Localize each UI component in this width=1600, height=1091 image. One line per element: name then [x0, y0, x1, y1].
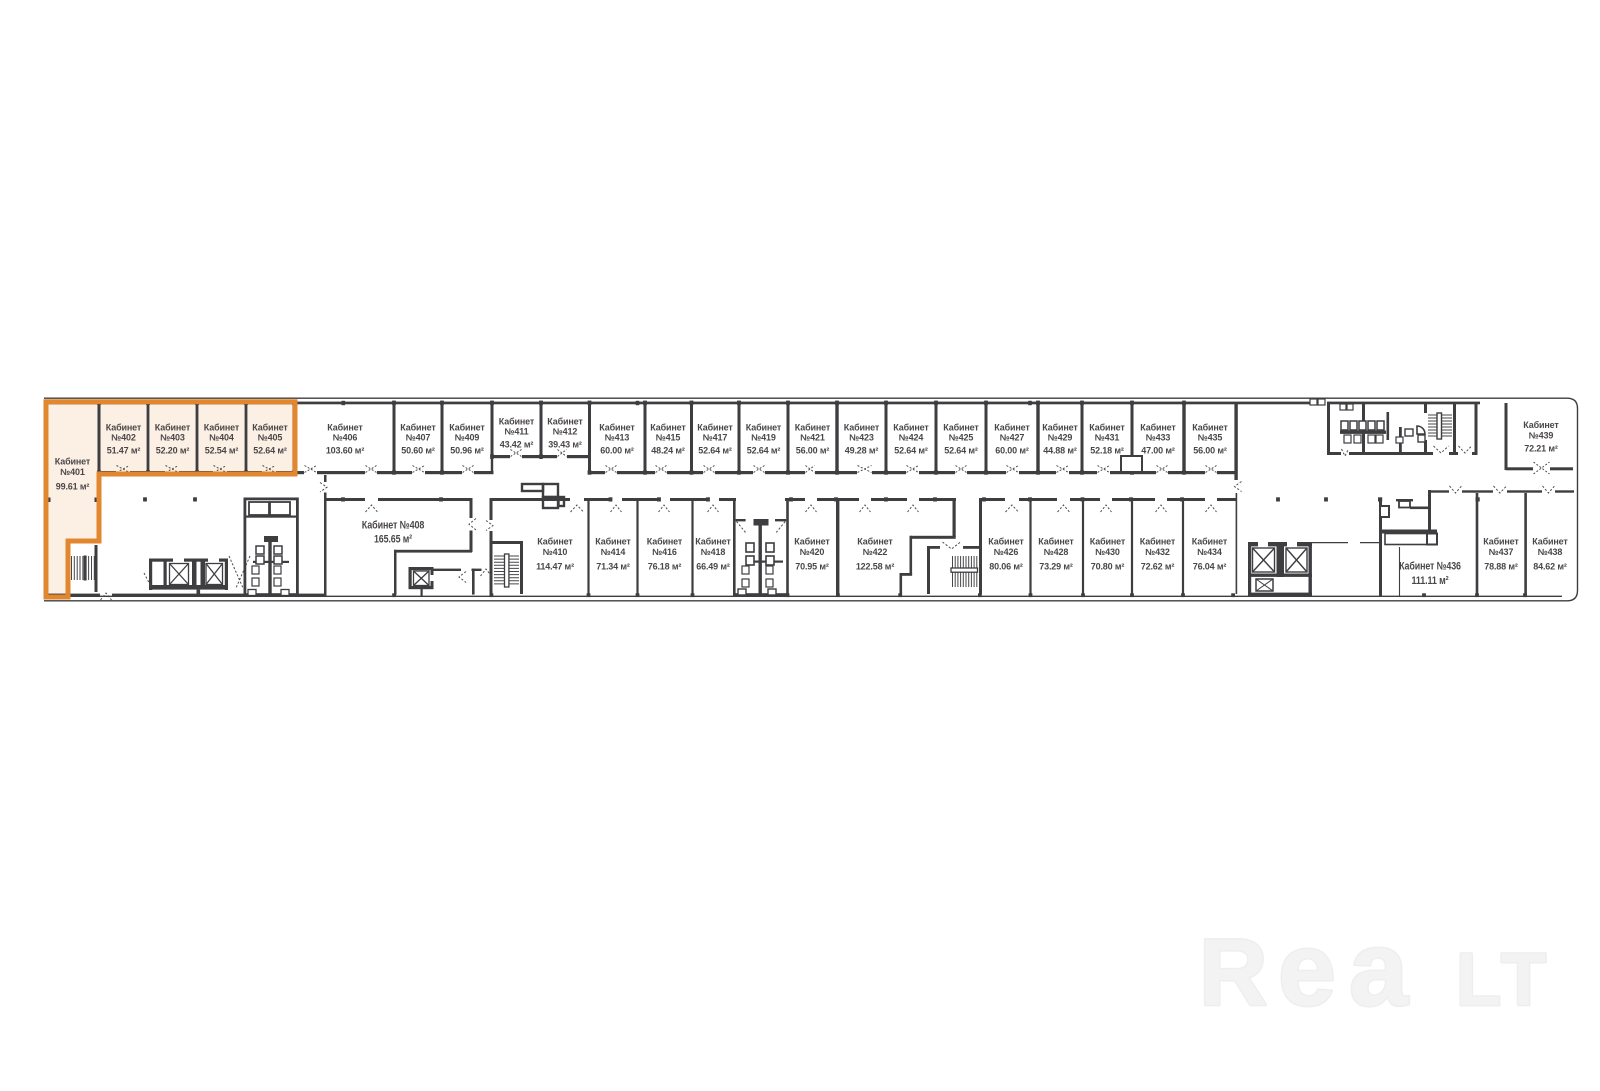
- svg-text:52.64 м²: 52.64 м²: [944, 446, 978, 456]
- svg-text:Кабинет: Кабинет: [1483, 537, 1519, 547]
- svg-text:122.58 м²: 122.58 м²: [856, 562, 894, 572]
- svg-text:№415: №415: [656, 433, 681, 443]
- svg-text:52.54 м²: 52.54 м²: [205, 446, 239, 456]
- svg-text:Кабинет: Кабинет: [595, 537, 631, 547]
- svg-text:№414: №414: [601, 547, 626, 557]
- svg-text:39.43 м²: 39.43 м²: [548, 440, 582, 450]
- svg-text:№407: №407: [406, 433, 431, 443]
- svg-text:70.95 м²: 70.95 м²: [795, 562, 829, 572]
- svg-text:78.88 м²: 78.88 м²: [1484, 562, 1518, 572]
- svg-text:Кабинет: Кабинет: [204, 423, 240, 433]
- svg-text:Кабинет: Кабинет: [795, 423, 831, 433]
- svg-text:№413: №413: [605, 433, 630, 443]
- svg-text:52.20 м²: 52.20 м²: [156, 446, 190, 456]
- svg-text:Кабинет №408: Кабинет №408: [362, 520, 424, 532]
- svg-text:80.06 м²: 80.06 м²: [989, 562, 1023, 572]
- svg-text:Кабинет: Кабинет: [599, 423, 635, 433]
- svg-text:103.60 м²: 103.60 м²: [326, 446, 364, 456]
- svg-text:60.00 м²: 60.00 м²: [995, 446, 1029, 456]
- svg-text:70.80 м²: 70.80 м²: [1091, 562, 1125, 572]
- svg-text:Кабинет: Кабинет: [697, 423, 733, 433]
- svg-text:76.18 м²: 76.18 м²: [648, 562, 682, 572]
- svg-text:№425: №425: [949, 433, 974, 443]
- svg-text:Кабинет: Кабинет: [400, 423, 436, 433]
- svg-text:a: a: [1349, 910, 1409, 1028]
- svg-text:№410: №410: [543, 547, 568, 557]
- svg-text:№431: №431: [1095, 433, 1120, 443]
- svg-text:№429: №429: [1048, 433, 1073, 443]
- svg-text:Кабинет: Кабинет: [794, 537, 830, 547]
- svg-text:№402: №402: [111, 433, 136, 443]
- svg-text:84.62 м²: 84.62 м²: [1533, 562, 1567, 572]
- svg-text:Кабинет: Кабинет: [1192, 537, 1228, 547]
- svg-text:№434: №434: [1197, 547, 1222, 557]
- svg-text:№417: №417: [703, 433, 728, 443]
- svg-text:44.88 м²: 44.88 м²: [1043, 446, 1077, 456]
- svg-text:Кабинет: Кабинет: [1192, 423, 1228, 433]
- svg-text:52.64 м²: 52.64 м²: [747, 446, 781, 456]
- svg-text:L: L: [1456, 938, 1501, 1021]
- svg-text:№411: №411: [505, 427, 529, 437]
- svg-text:51.47 м²: 51.47 м²: [107, 446, 141, 456]
- svg-text:№420: №420: [800, 547, 825, 557]
- svg-text:№422: №422: [863, 547, 888, 557]
- svg-text:47.00 м²: 47.00 м²: [1141, 446, 1175, 456]
- svg-text:№406: №406: [333, 433, 358, 443]
- svg-text:71.34 м²: 71.34 м²: [596, 562, 630, 572]
- svg-text:Кабинет: Кабинет: [1140, 537, 1176, 547]
- svg-text:52.64 м²: 52.64 м²: [698, 446, 732, 456]
- svg-text:№432: №432: [1145, 547, 1170, 557]
- svg-text:Кабинет: Кабинет: [647, 537, 683, 547]
- svg-text:R: R: [1199, 920, 1268, 1026]
- svg-text:52.18 м²: 52.18 м²: [1090, 446, 1124, 456]
- svg-text:№403: №403: [160, 433, 185, 443]
- svg-text:Кабинет: Кабинет: [746, 423, 782, 433]
- svg-text:72.62 м²: 72.62 м²: [1141, 562, 1175, 572]
- svg-text:№433: №433: [1146, 433, 1171, 443]
- svg-text:52.64 м²: 52.64 м²: [253, 446, 287, 456]
- svg-text:№437: №437: [1489, 547, 1514, 557]
- svg-text:66.49 м²: 66.49 м²: [696, 562, 730, 572]
- svg-text:№435: №435: [1198, 433, 1223, 443]
- svg-text:52.64 м²: 52.64 м²: [894, 446, 928, 456]
- svg-text:Кабинет: Кабинет: [1523, 420, 1559, 430]
- svg-text:Кабинет: Кабинет: [155, 423, 191, 433]
- svg-text:56.00 м²: 56.00 м²: [1193, 446, 1227, 456]
- svg-text:№418: №418: [701, 547, 726, 557]
- svg-text:50.96 м²: 50.96 м²: [450, 446, 484, 456]
- svg-text:49.28 м²: 49.28 м²: [845, 446, 879, 456]
- svg-text:№426: №426: [994, 547, 1019, 557]
- svg-text:Кабинет: Кабинет: [449, 423, 485, 433]
- svg-text:Кабинет: Кабинет: [1042, 423, 1078, 433]
- svg-text:№401: №401: [60, 467, 85, 477]
- svg-text:Кабинет: Кабинет: [106, 423, 142, 433]
- svg-text:T: T: [1501, 938, 1546, 1021]
- svg-text:№427: №427: [1000, 433, 1025, 443]
- svg-text:Кабинет: Кабинет: [857, 537, 893, 547]
- svg-text:№423: №423: [849, 433, 874, 443]
- svg-text:№409: №409: [455, 433, 480, 443]
- svg-text:99.61 м²: 99.61 м²: [56, 482, 90, 492]
- svg-text:114.47 м²: 114.47 м²: [536, 562, 574, 572]
- svg-text:60.00 м²: 60.00 м²: [600, 446, 634, 456]
- svg-text:Кабинет: Кабинет: [537, 537, 573, 547]
- svg-text:Кабинет №436: Кабинет №436: [1399, 561, 1461, 573]
- svg-text:№428: №428: [1044, 547, 1069, 557]
- svg-text:73.29 м²: 73.29 м²: [1039, 562, 1073, 572]
- svg-text:56.00 м²: 56.00 м²: [796, 446, 830, 456]
- svg-text:Кабинет: Кабинет: [327, 423, 363, 433]
- svg-text:43.42 м²: 43.42 м²: [500, 440, 534, 450]
- svg-text:Кабинет: Кабинет: [1038, 537, 1074, 547]
- svg-text:№416: №416: [652, 547, 677, 557]
- svg-text:Кабинет: Кабинет: [994, 423, 1030, 433]
- svg-text:№412: №412: [553, 427, 578, 437]
- svg-text:№430: №430: [1095, 547, 1120, 557]
- svg-text:Кабинет: Кабинет: [547, 417, 583, 427]
- svg-text:Кабинет: Кабинет: [844, 423, 880, 433]
- svg-text:№421: №421: [800, 433, 825, 443]
- svg-text:Кабинет: Кабинет: [252, 423, 288, 433]
- svg-text:Кабинет: Кабинет: [1089, 423, 1125, 433]
- svg-text:№424: №424: [899, 433, 924, 443]
- svg-text:Кабинет: Кабинет: [55, 457, 91, 467]
- svg-text:№438: №438: [1538, 547, 1563, 557]
- svg-text:e: e: [1278, 912, 1336, 1028]
- svg-text:48.24 м²: 48.24 м²: [651, 446, 685, 456]
- svg-text:Кабинет: Кабинет: [988, 537, 1024, 547]
- svg-text:76.04 м²: 76.04 м²: [1193, 562, 1227, 572]
- svg-text:Кабинет: Кабинет: [650, 423, 686, 433]
- svg-text:50.60 м²: 50.60 м²: [401, 446, 435, 456]
- svg-text:Кабинет: Кабинет: [1532, 537, 1568, 547]
- svg-text:Кабинет: Кабинет: [1090, 537, 1126, 547]
- svg-text:72.21 м²: 72.21 м²: [1524, 444, 1558, 454]
- svg-text:№404: №404: [209, 433, 234, 443]
- svg-text:№405: №405: [258, 433, 283, 443]
- svg-text:№419: №419: [751, 433, 776, 443]
- svg-text:Кабинет: Кабинет: [1140, 423, 1176, 433]
- svg-text:Кабинет: Кабинет: [943, 423, 979, 433]
- svg-text:111.11 м²: 111.11 м²: [1412, 575, 1449, 587]
- svg-text:165.65 м²: 165.65 м²: [374, 534, 412, 546]
- svg-text:Кабинет: Кабинет: [499, 417, 535, 427]
- svg-text:Кабинет: Кабинет: [893, 423, 929, 433]
- svg-text:№439: №439: [1529, 431, 1554, 441]
- svg-text:Кабинет: Кабинет: [695, 537, 731, 547]
